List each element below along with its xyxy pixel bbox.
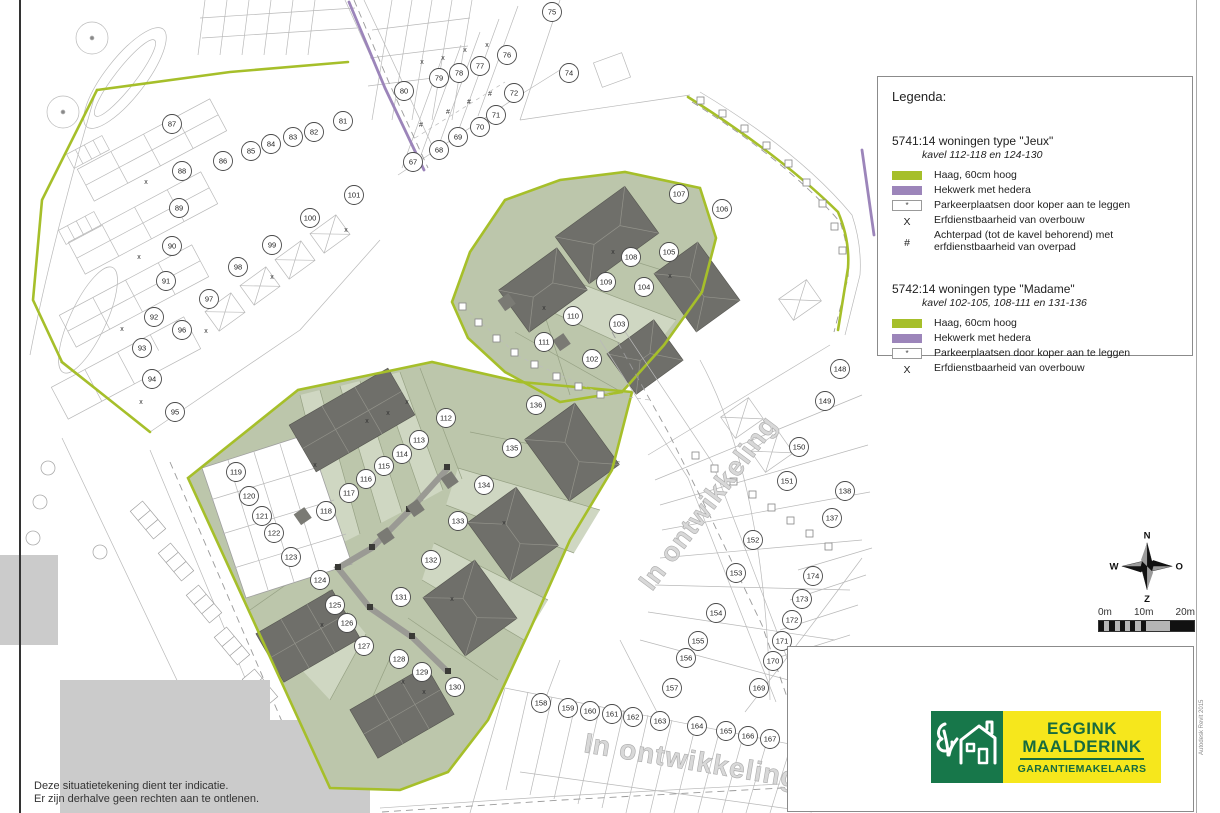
plot-number: 151 xyxy=(781,477,794,486)
legend-section-subtitle: kavel 102-105, 108-111 en 131-136 xyxy=(922,297,1178,309)
situatietekening-page: In ontwikkeling In ontwikkeling xxxxxxxx… xyxy=(0,0,1220,813)
legend-title: Legenda: xyxy=(892,89,1178,104)
overbouw-symbol: X xyxy=(892,364,922,373)
plot-number: 78 xyxy=(455,69,463,78)
plot-number: 88 xyxy=(178,167,186,176)
fence-swatch xyxy=(892,334,922,343)
legend-item-label: Erfdienstbaarheid van overbouw xyxy=(934,362,1085,374)
fence-swatch xyxy=(892,186,922,195)
overbouw-mark: x xyxy=(313,462,317,469)
plot-number: 131 xyxy=(395,593,408,602)
plot-number: 134 xyxy=(478,481,491,490)
overbouw-mark: x xyxy=(502,520,506,527)
overbouw-mark: x xyxy=(611,249,615,256)
legend-section-jeux: 5741:14 woningen type "Jeux" kavel 112-1… xyxy=(892,134,1178,253)
plot-number: 81 xyxy=(339,117,347,126)
plot-number: 154 xyxy=(710,609,723,618)
fence-line xyxy=(349,2,424,170)
legend-item: X Erfdienstbaarheid van overbouw xyxy=(892,214,1178,226)
plot-number: 102 xyxy=(586,355,599,364)
plot-number: 68 xyxy=(435,146,443,155)
plot-number: 164 xyxy=(691,722,704,731)
plot-number: 108 xyxy=(625,253,638,262)
overbouw-mark: x xyxy=(204,328,208,335)
plot-number: 170 xyxy=(767,657,780,666)
compass-west-label: W xyxy=(1110,562,1119,573)
legend-item: Haag, 60cm hoog xyxy=(892,169,1178,181)
overbouw-mark: x xyxy=(485,42,489,49)
plot-number: 101 xyxy=(348,191,361,200)
plot-number: 161 xyxy=(606,710,619,719)
legend-section-subtitle: kavel 112-118 en 124-130 xyxy=(922,149,1178,161)
legend-item: # Achterpad (tot de kavel behorend) met … xyxy=(892,229,1178,253)
plot-number: 97 xyxy=(205,295,213,304)
plot-number: 130 xyxy=(449,683,462,692)
scale-bar: 0m 10m 20m xyxy=(1098,607,1195,632)
logo-line-1: EGGINK xyxy=(1047,720,1117,737)
hedge-swatch xyxy=(892,171,922,180)
legend-section-title: 5741:14 woningen type "Jeux" xyxy=(892,134,1178,148)
overbouw-mark: x xyxy=(365,418,369,425)
plot-number: 160 xyxy=(584,707,597,716)
plot-number: 69 xyxy=(454,133,462,142)
plot-number: 169 xyxy=(753,684,766,693)
plot-number: 126 xyxy=(341,619,354,628)
legend-section-title: 5742:14 woningen type "Madame" xyxy=(892,282,1178,296)
plot-number: 163 xyxy=(654,717,667,726)
plot-number: 115 xyxy=(378,462,390,471)
plot-number: 156 xyxy=(680,654,693,663)
achterpad-mark: # xyxy=(419,122,423,129)
legend-item: * Parkeerplaatsen door koper aan te legg… xyxy=(892,199,1178,211)
plot-number: 80 xyxy=(400,87,408,96)
scale-bar-segments xyxy=(1098,620,1195,632)
logo-panel: EGGINK MAALDERINK GARANTIEMAKELAARS xyxy=(787,646,1194,812)
plot-number: 173 xyxy=(796,595,809,604)
plot-number: 158 xyxy=(535,699,548,708)
overbouw-mark: x xyxy=(139,399,143,406)
achterpad-symbol: # xyxy=(892,237,922,246)
plot-number: 149 xyxy=(819,397,832,406)
legend-item-label: Haag, 60cm hoog xyxy=(934,317,1017,329)
plot-number: 159 xyxy=(562,704,575,713)
legend-item: Hekwerk met hedera xyxy=(892,184,1178,196)
plot-number: 91 xyxy=(162,277,170,286)
plot-number: 117 xyxy=(343,489,355,498)
plot-number: 116 xyxy=(360,475,372,484)
plot-number: 70 xyxy=(476,123,484,132)
compass-star xyxy=(1122,543,1172,590)
plot-number: 85 xyxy=(247,147,255,156)
plot-number: 172 xyxy=(786,616,799,625)
plot-number: 89 xyxy=(175,204,183,213)
plot-number: 67 xyxy=(409,158,417,167)
legend-panel: Legenda: 5741:14 woningen type "Jeux" ka… xyxy=(877,76,1193,356)
plot-number: 132 xyxy=(425,556,438,565)
fence-line xyxy=(862,150,874,235)
plot-number: 104 xyxy=(638,283,651,292)
plot-number: 82 xyxy=(310,128,318,137)
disclaimer-line-1: Deze situatietekening dient ter indicati… xyxy=(34,780,259,793)
plot-number: 120 xyxy=(243,492,256,501)
plot-number: 105 xyxy=(663,248,676,257)
plot-number: 150 xyxy=(793,443,806,452)
plot-number: 121 xyxy=(256,512,269,521)
plot-number: 167 xyxy=(764,735,777,744)
legend-item-label: Hekwerk met hedera xyxy=(934,184,1031,196)
logo-line-3: GARANTIEMAKELAARS xyxy=(1018,763,1147,775)
logo-house-tree-icon xyxy=(931,711,1003,783)
plot-number: 74 xyxy=(565,69,573,78)
plot-number: 152 xyxy=(747,536,760,545)
scale-label-10: 10m xyxy=(1134,607,1153,618)
plot-number: 72 xyxy=(510,89,518,98)
plot-number: 127 xyxy=(358,642,371,651)
overbouw-mark: x xyxy=(386,410,390,417)
overbouw-mark: x xyxy=(320,622,324,629)
compass-south-label: Z xyxy=(1144,594,1150,605)
plot-number: 96 xyxy=(178,326,186,335)
hedge-swatch xyxy=(892,319,922,328)
compass-rose: N O Z W xyxy=(1100,528,1195,608)
plot-number: 171 xyxy=(776,637,789,646)
plot-number: 155 xyxy=(692,637,705,646)
scale-label-20: 20m xyxy=(1176,607,1195,618)
plot-number: 118 xyxy=(320,507,332,516)
plot-number: 124 xyxy=(314,576,327,585)
legend-item: Haag, 60cm hoog xyxy=(892,317,1178,329)
legend-item-label: Erfdienstbaarheid van overbouw xyxy=(934,214,1085,226)
overbouw-mark: x xyxy=(422,689,426,696)
plot-number: 86 xyxy=(219,157,227,166)
achterpad-mark: # xyxy=(488,91,492,98)
legend-item: * Parkeerplaatsen door koper aan te legg… xyxy=(892,347,1178,359)
overbouw-mark: x xyxy=(450,596,454,603)
overbouw-mark: x xyxy=(463,47,467,54)
disclaimer-line-2: Er zijn derhalve geen rechten aan te ont… xyxy=(34,793,259,806)
overbouw-mark: x xyxy=(344,227,348,234)
overbouw-mark: x xyxy=(270,274,274,281)
parking-swatch: * xyxy=(892,348,922,359)
logo-wordmark: EGGINK MAALDERINK GARANTIEMAKELAARS xyxy=(1003,711,1161,783)
legend-item-label: Achterpad (tot de kavel behorend) met er… xyxy=(934,229,1178,253)
company-logo: EGGINK MAALDERINK GARANTIEMAKELAARS xyxy=(931,711,1161,783)
plot-number: 106 xyxy=(716,205,729,214)
achterpad-mark: # xyxy=(467,99,471,106)
plot-number: 77 xyxy=(476,62,484,71)
plot-number: 136 xyxy=(530,401,543,410)
overbouw-mark: x xyxy=(542,305,546,312)
overbouw-mark: x xyxy=(144,179,148,186)
plot-number: 113 xyxy=(413,436,425,445)
legend-item: Hekwerk met hedera xyxy=(892,332,1178,344)
plot-number: 148 xyxy=(834,365,847,374)
legend-item: X Erfdienstbaarheid van overbouw xyxy=(892,362,1178,374)
plot-number: 138 xyxy=(839,487,852,496)
plot-number: 128 xyxy=(393,655,406,664)
compass-north-label: N xyxy=(1144,530,1151,541)
plot-number: 75 xyxy=(548,8,556,17)
plot-number: 165 xyxy=(720,727,733,736)
plot-number: 87 xyxy=(168,120,176,129)
compass-east-label: O xyxy=(1176,562,1184,573)
plot-number: 94 xyxy=(148,375,156,384)
plot-number: 125 xyxy=(329,601,342,610)
drawing-frame-right xyxy=(1196,0,1197,813)
plot-number: 83 xyxy=(289,133,297,142)
plot-number: 92 xyxy=(150,313,158,322)
overbouw-mark: x xyxy=(137,254,141,261)
legend-item-label: Parkeerplaatsen door koper aan te leggen xyxy=(934,199,1130,211)
plot-number: 103 xyxy=(613,320,626,329)
overbouw-mark: x xyxy=(420,59,424,66)
overbouw-mark: x xyxy=(405,399,409,406)
plot-number: 95 xyxy=(171,408,179,417)
plot-number: 98 xyxy=(234,263,242,272)
plot-number: 135 xyxy=(506,444,519,453)
software-stamp: Autodesk Revit 2015 xyxy=(1199,700,1205,755)
plot-number: 123 xyxy=(285,553,298,562)
plot-number: 133 xyxy=(452,517,465,526)
plot-number: 100 xyxy=(304,214,317,223)
plot-number: 111 xyxy=(538,338,549,347)
plot-number: 112 xyxy=(440,414,452,423)
plot-number: 129 xyxy=(416,668,429,677)
plot-number: 79 xyxy=(435,74,443,83)
plot-number: 110 xyxy=(567,312,579,321)
plot-number: 84 xyxy=(267,140,275,149)
plot-number: 76 xyxy=(503,51,511,60)
plot-number: 157 xyxy=(666,684,679,693)
plot-number: 137 xyxy=(826,514,839,523)
plot-number: 119 xyxy=(230,468,242,477)
overbouw-symbol: X xyxy=(892,216,922,225)
plot-number: 174 xyxy=(807,572,820,581)
legend-item-label: Hekwerk met hedera xyxy=(934,332,1031,344)
legend-section-madame: 5742:14 woningen type "Madame" kavel 102… xyxy=(892,282,1178,374)
overbouw-mark: x xyxy=(120,326,124,333)
overbouw-mark: x xyxy=(441,55,445,62)
plot-number: 99 xyxy=(268,241,276,250)
plot-number: 153 xyxy=(730,569,743,578)
drawing-frame-left xyxy=(19,0,21,813)
plot-number: 109 xyxy=(600,278,613,287)
plot-number: 122 xyxy=(268,529,281,538)
disclaimer-note: Deze situatietekening dient ter indicati… xyxy=(34,780,259,806)
plot-number: 114 xyxy=(396,450,408,459)
plot-number: 162 xyxy=(627,713,640,722)
achterpad-mark: # xyxy=(446,109,450,116)
plot-number: 166 xyxy=(742,732,755,741)
overbouw-mark: x xyxy=(401,679,405,686)
plot-number: 71 xyxy=(492,111,500,120)
legend-item-label: Haag, 60cm hoog xyxy=(934,169,1017,181)
legend-item-label: Parkeerplaatsen door koper aan te leggen xyxy=(934,347,1130,359)
overbouw-mark: x xyxy=(668,273,672,280)
scale-label-0: 0m xyxy=(1098,607,1112,618)
parking-swatch: * xyxy=(892,200,922,211)
plot-number: 107 xyxy=(673,190,686,199)
logo-line-2: MAALDERINK xyxy=(1020,737,1143,760)
plot-number: 90 xyxy=(168,242,176,251)
plot-number: 93 xyxy=(138,344,146,353)
